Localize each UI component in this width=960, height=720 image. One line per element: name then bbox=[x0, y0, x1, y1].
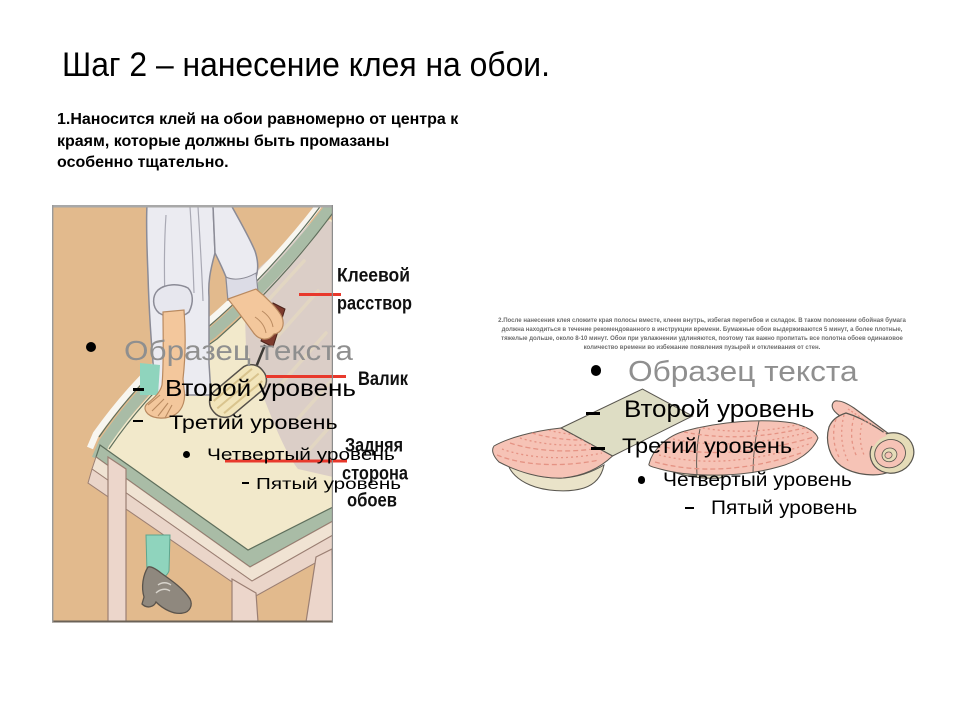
svg-text:Клеевой: Клеевой bbox=[337, 266, 410, 287]
svg-text:Валик: Валик bbox=[358, 369, 408, 390]
svg-text:обоев: обоев bbox=[347, 491, 397, 512]
svg-text:расствор: расствор bbox=[337, 294, 412, 315]
